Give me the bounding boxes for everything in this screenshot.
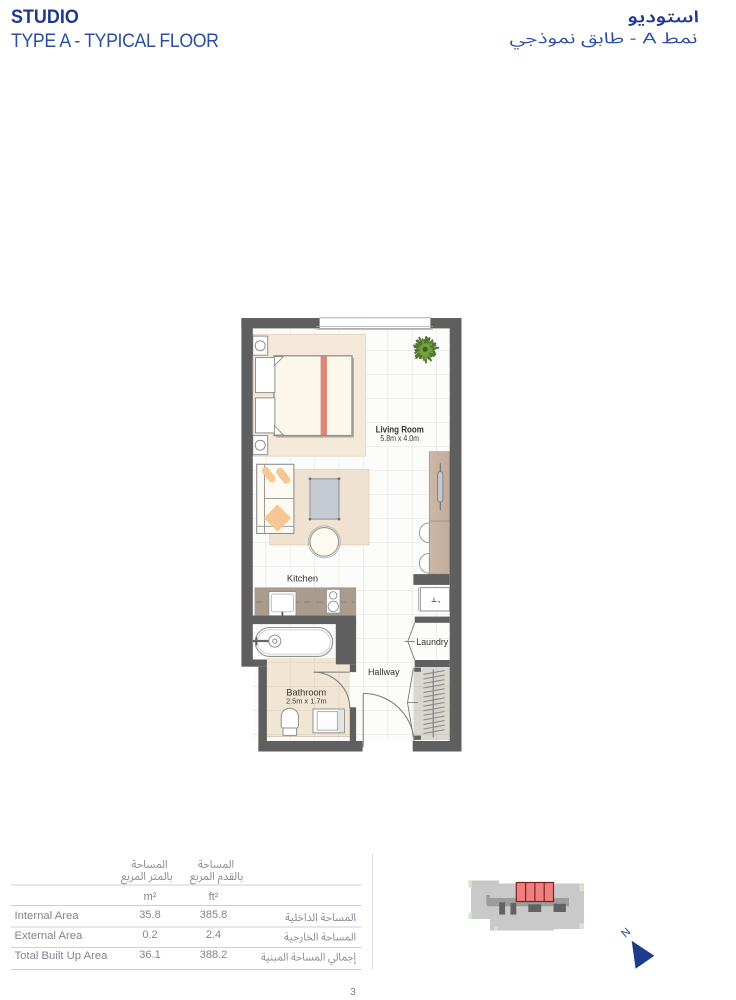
svg-text:Laundry: Laundry — [416, 637, 448, 647]
svg-text:N: N — [619, 926, 633, 940]
svg-text:Hallway: Hallway — [368, 667, 400, 677]
svg-text:2.5m x 1.7m: 2.5m x 1.7m — [286, 697, 327, 706]
svg-text:Kitchen: Kitchen — [287, 573, 318, 584]
svg-text:5.8m x 4.0m: 5.8m x 4.0m — [380, 434, 419, 443]
